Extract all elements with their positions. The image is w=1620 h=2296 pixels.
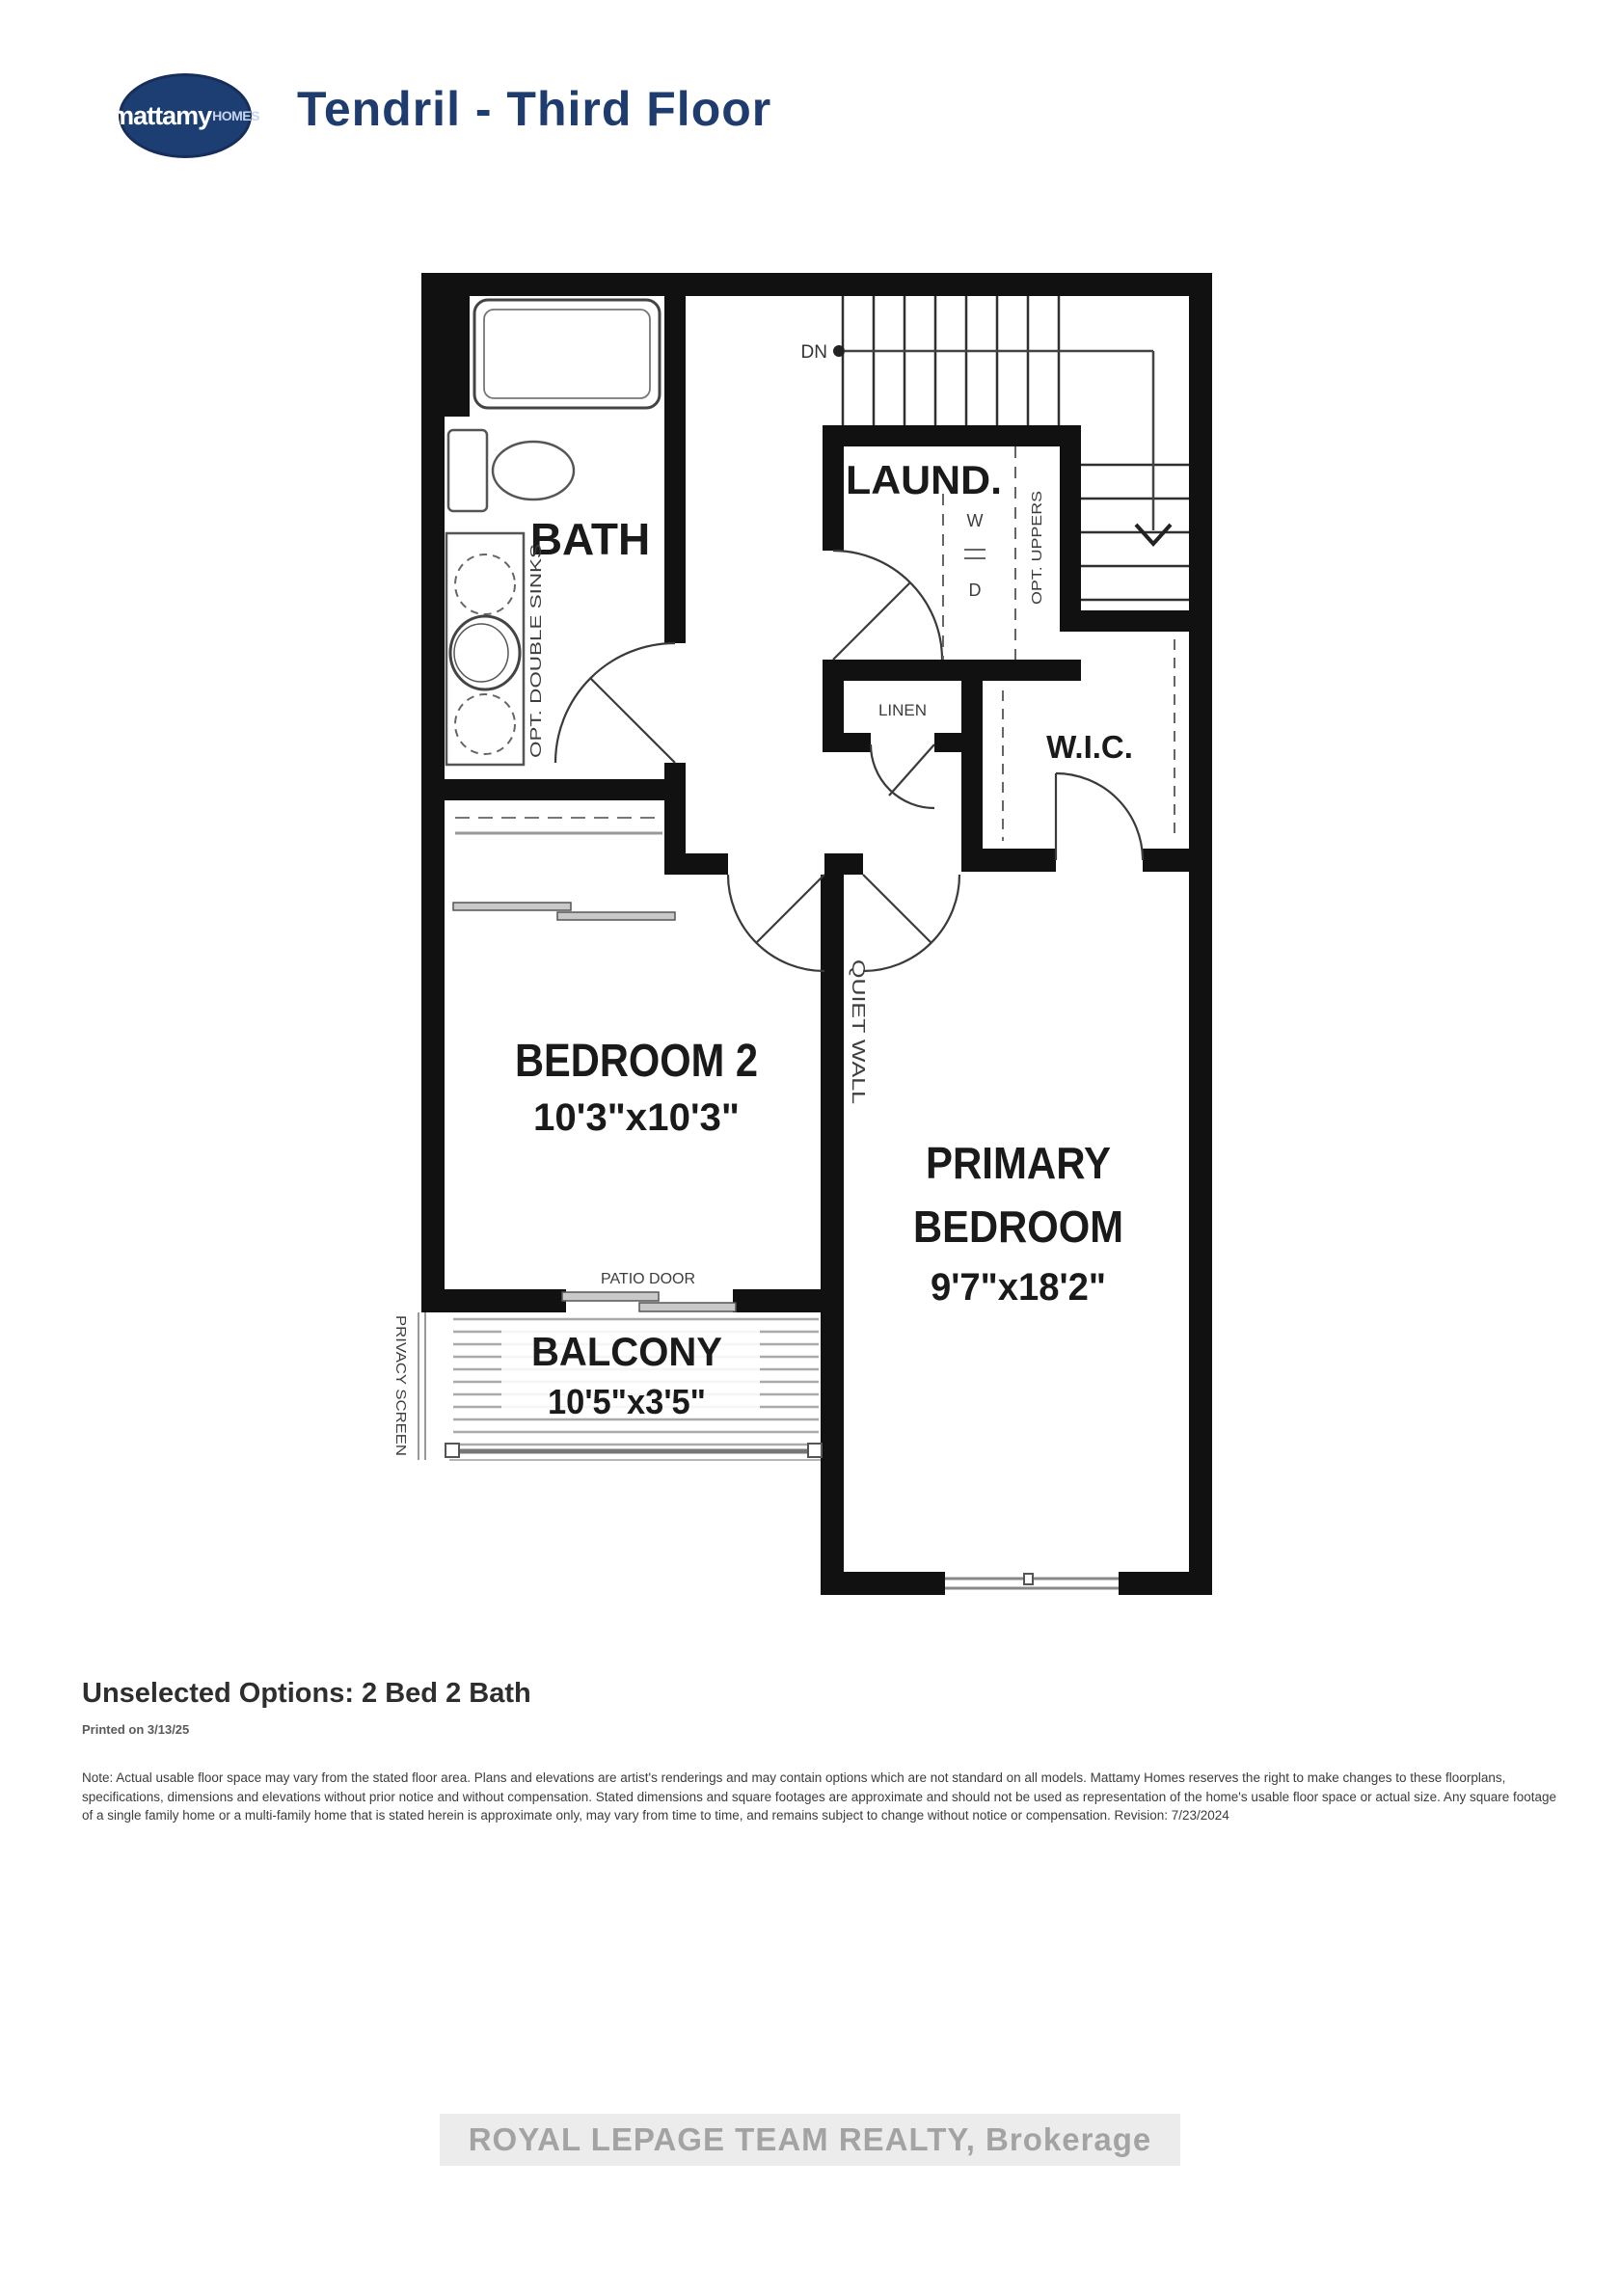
primary-dims: 9'7"x18'2" [931,1266,1106,1309]
privacy-screen-label: PRIVACY SCREEN [392,1315,409,1456]
dryer-label: D [969,581,982,600]
primary-label-line1: PRIMARY [926,1138,1111,1188]
floor-plan-drawing: DN [0,0,1620,2296]
vanity-icon [446,533,524,765]
primary-label-line2: BEDROOM [913,1202,1123,1252]
dn-label: DN [801,342,827,363]
bedroom2-dims: 10'3"x10'3" [533,1096,740,1139]
disclaimer-text: Note: Actual usable floor space may vary… [82,1769,1562,1825]
primary-window [945,1574,1119,1588]
wic-label: W.I.C. [1046,729,1133,765]
balcony-label: BALCONY [531,1329,722,1374]
bedroom2-label: BEDROOM 2 [515,1036,758,1087]
washer-label: W [967,511,984,530]
privacy-screen [418,1312,425,1460]
printed-date: Printed on 3/13/25 [82,1722,189,1737]
stairs-lower-treads [1081,465,1189,600]
toilet-icon [448,430,574,511]
bedroom2-closet [453,818,675,920]
bath-label: BATH [530,514,650,564]
primary-door [863,875,959,971]
patio-door-label: PATIO DOOR [601,1271,695,1287]
laundry-label: LAUND. [846,457,1002,502]
bath-door [555,643,675,763]
bedroom2-door [728,875,824,971]
balcony-dims: 10'5"x3'5" [548,1382,706,1421]
bathtub-icon [474,300,660,408]
linen-door [871,744,934,808]
brokerage-watermark: ROYAL LEPAGE TEAM REALTY, Brokerage [0,2114,1620,2166]
wic-door [1056,773,1143,860]
linen-label: LINEN [878,701,927,719]
unselected-options-label: Unselected Options: 2 Bed 2 Bath [82,1678,531,1710]
brokerage-watermark-text: ROYAL LEPAGE TEAM REALTY, Brokerage [440,2114,1181,2166]
floor-plan-page: mattamy HOMES Tendril - Third Floor [0,0,1620,2296]
stairs-upper-treads [843,296,1059,425]
balcony-railing [445,1444,822,1460]
quiet-wall-label: QUIET WALL [849,959,868,1104]
opt-uppers-label: OPT. UPPERS [1029,491,1045,605]
opt-double-sinks-label: OPT. DOUBLE SINKS [528,544,545,758]
laundry-door [833,551,942,660]
patio-door [562,1292,736,1311]
